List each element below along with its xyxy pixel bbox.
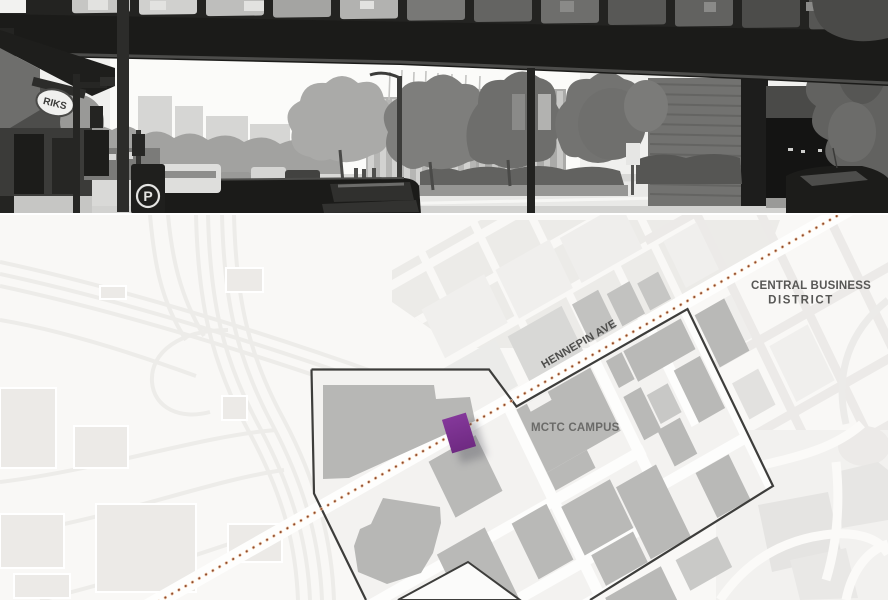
- svg-text:DISTRICT: DISTRICT: [768, 295, 834, 307]
- svg-text:CENTRAL BUSINESS: CENTRAL BUSINESS: [751, 280, 871, 292]
- svg-text:MCTC CAMPUS: MCTC CAMPUS: [531, 422, 620, 434]
- svg-text:P: P: [143, 188, 152, 204]
